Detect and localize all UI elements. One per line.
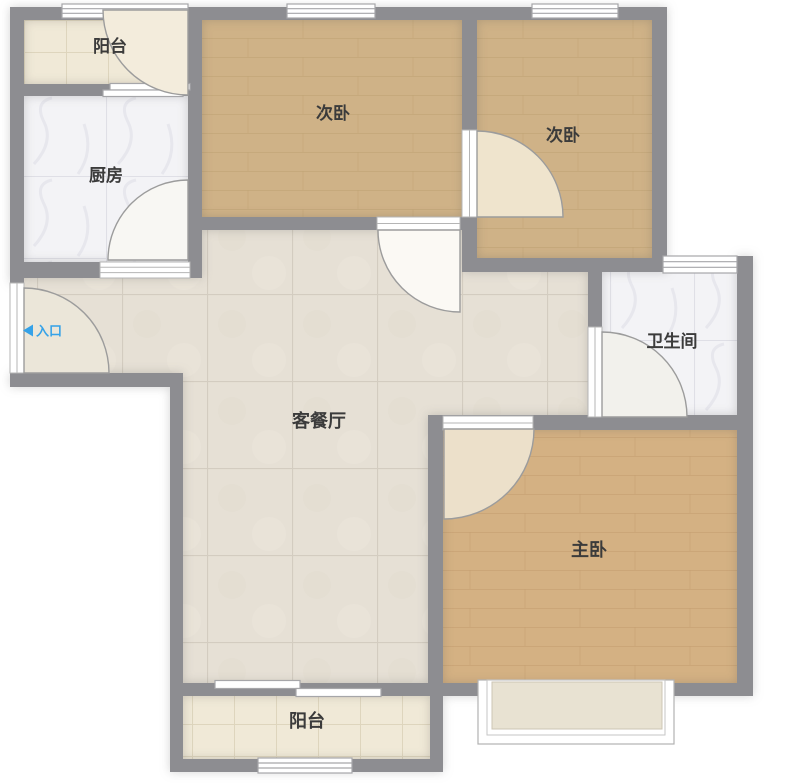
bedroom-1-door-jamb xyxy=(377,217,460,230)
room-living-floor-mid xyxy=(183,373,588,415)
bedroom-2-door-jamb xyxy=(462,130,477,217)
wall-bedroom2-bottom xyxy=(462,258,667,272)
room-living-floor-main xyxy=(183,415,428,683)
wall-balcony-bottom-right xyxy=(430,683,443,772)
room-bedroom-2-label: 次卧 xyxy=(546,125,580,145)
bathroom-door-jamb xyxy=(588,327,602,417)
window-balcony-bottom xyxy=(258,758,352,773)
wall-left-lower xyxy=(170,373,183,772)
window-bedroom-1 xyxy=(287,4,375,18)
wall-kitchen-right xyxy=(188,7,202,278)
entrance-label: 入口 xyxy=(36,324,62,339)
master-door-jamb xyxy=(443,416,533,430)
wall-bedroom2-right xyxy=(652,7,667,260)
room-master-label: 主卧 xyxy=(571,539,607,560)
room-living-label: 客餐厅 xyxy=(292,410,346,431)
room-kitchen-label: 厨房 xyxy=(89,165,123,185)
floor-plan-svg: 阳台 厨房 次卧 次卧 卫生间 客餐厅 主卧 阳台 入口 xyxy=(0,0,787,784)
room-balcony-bottom-label: 阳台 xyxy=(289,710,325,731)
window-bedroom-2 xyxy=(532,4,618,18)
wall-living-right xyxy=(428,415,443,683)
bay-window-master xyxy=(478,680,674,744)
wall-entry-bottom xyxy=(10,373,183,387)
room-living-floor-corridor xyxy=(24,272,588,373)
kitchen-door-jamb xyxy=(100,262,190,278)
room-bedroom-1-label: 次卧 xyxy=(316,103,350,123)
wall-left-upper xyxy=(10,7,24,283)
window-bathroom xyxy=(663,256,737,273)
room-balcony-top-label: 阳台 xyxy=(93,36,127,56)
room-bathroom-label: 卫生间 xyxy=(647,331,698,351)
wall-right-outer xyxy=(737,256,753,696)
floor-plan: 阳台 厨房 次卧 次卧 卫生间 客餐厅 主卧 阳台 入口 xyxy=(0,0,787,784)
entrance-door-jamb xyxy=(10,283,24,373)
